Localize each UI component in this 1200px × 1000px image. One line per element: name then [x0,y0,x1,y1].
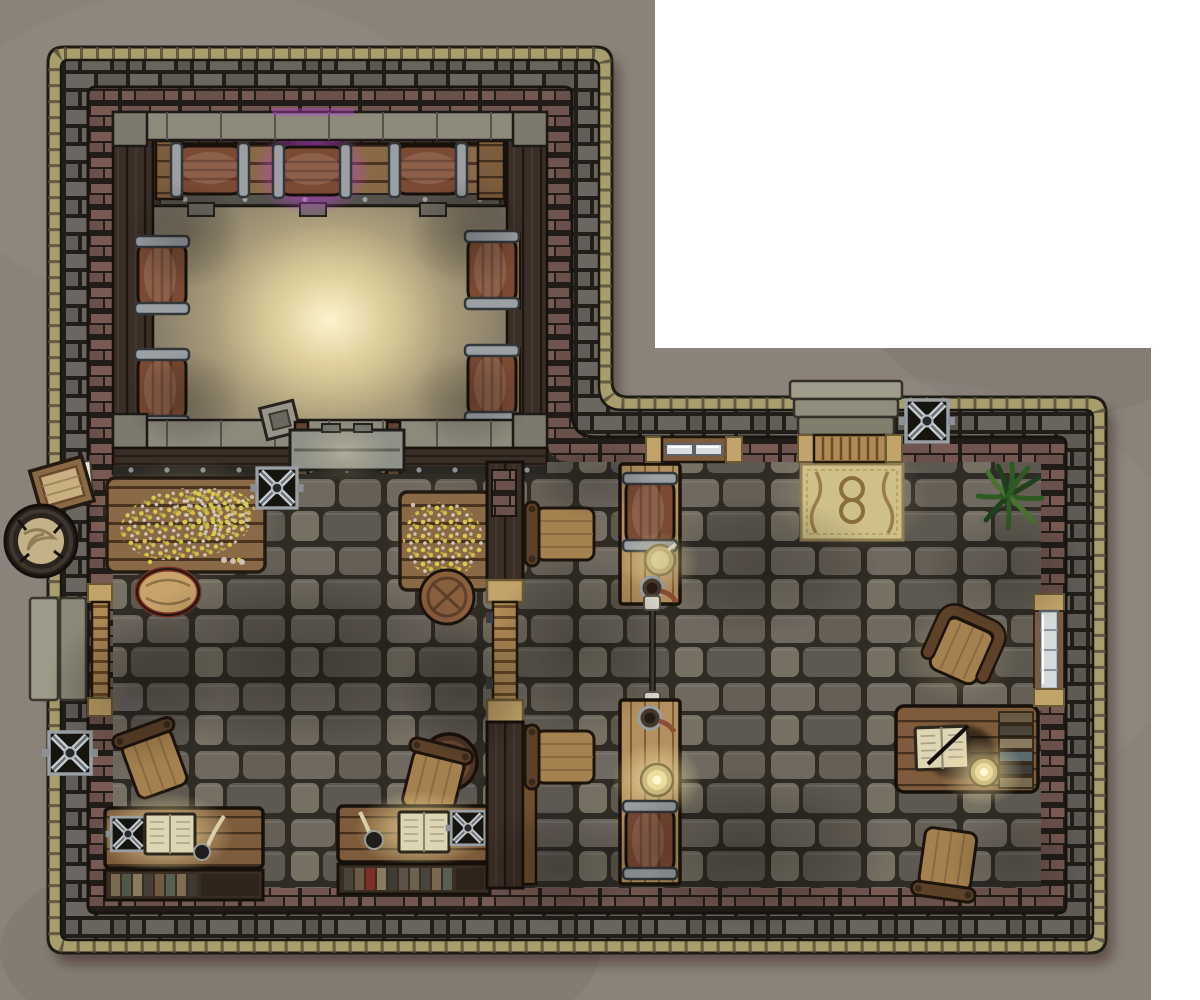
wall-lantern-inner [250,468,303,508]
north-window [646,437,742,462]
battlemap-canvas [0,0,1200,1000]
north-door [798,435,902,462]
bookshelf-2 [338,864,490,894]
open-book-1 [145,814,195,854]
glowing-keg [273,144,351,198]
study-desk [896,706,1038,806]
north-steps [790,381,902,435]
study-candle [970,758,999,787]
storage-floor-light-core [215,220,445,420]
battlemap-svg [0,0,1200,1000]
herb-table-1 [107,478,265,572]
wall-lantern-northeast [899,400,955,442]
open-book-2 [399,812,449,852]
round-basket [5,505,77,577]
purple-lintel-glow [272,108,354,116]
bookshelf-1 [105,870,263,900]
